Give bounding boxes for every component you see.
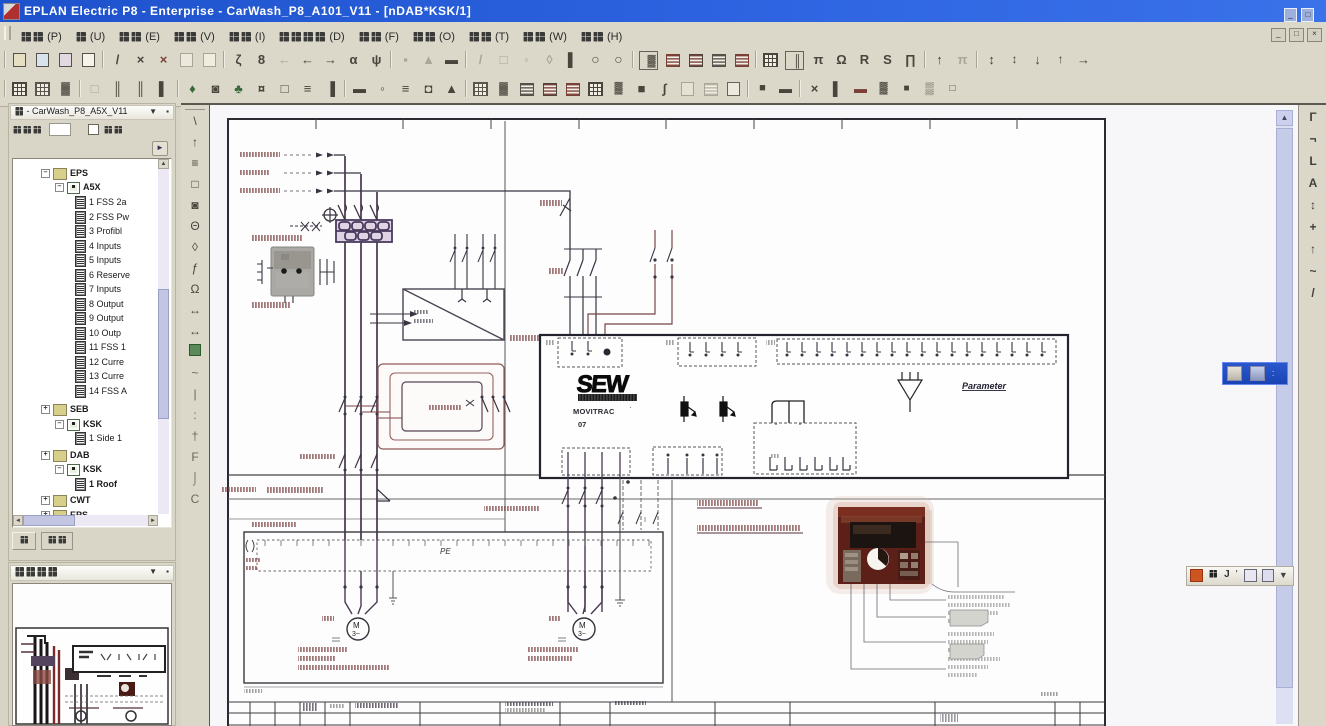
- svg-text:3~: 3~: [352, 631, 360, 638]
- svg-text:07: 07: [578, 420, 586, 429]
- svg-text:MOVITRAC: MOVITRAC: [573, 407, 615, 416]
- svg-text:M: M: [579, 621, 586, 630]
- svg-text:M: M: [353, 621, 360, 630]
- svg-text:PE: PE: [440, 547, 451, 556]
- svg-text:Parameter: Parameter: [962, 381, 1007, 391]
- svg-text:3~: 3~: [578, 631, 586, 638]
- svg-text:SEW: SEW: [575, 371, 630, 398]
